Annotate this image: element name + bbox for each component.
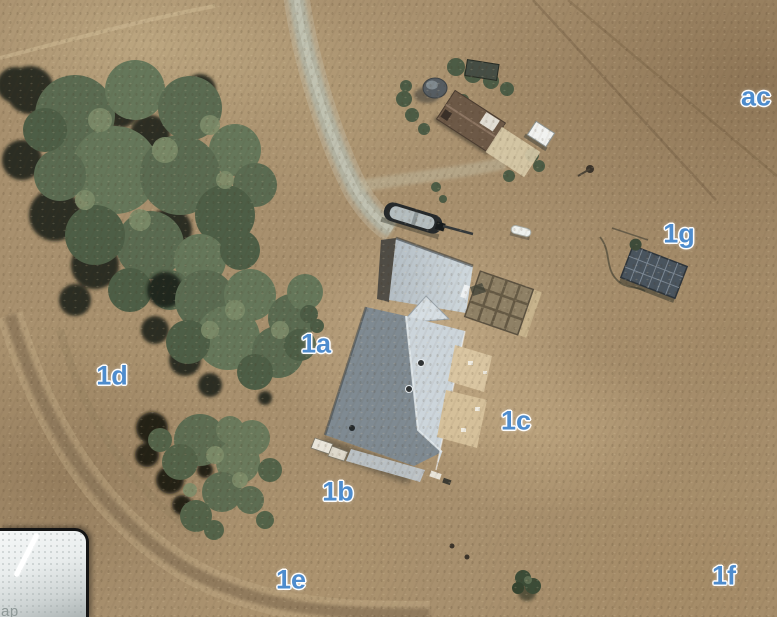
bush-south <box>512 570 541 601</box>
tree-cluster-west <box>141 269 323 405</box>
satellite-map-canvas[interactable]: ap ac1g1a1d1c1b1e1f <box>0 0 777 617</box>
tree-cluster-southwest <box>135 412 282 540</box>
inset-overview-map[interactable]: ap <box>0 528 89 617</box>
pergola-garden-frame <box>465 271 542 338</box>
map-attribution-text: ap <box>1 603 19 617</box>
aerial-scenery <box>0 0 777 617</box>
white-trailer-tank <box>510 225 532 241</box>
water-tank <box>414 78 447 103</box>
solar-panel-array <box>600 228 690 303</box>
garage-roof <box>377 238 473 323</box>
boat <box>381 200 473 240</box>
